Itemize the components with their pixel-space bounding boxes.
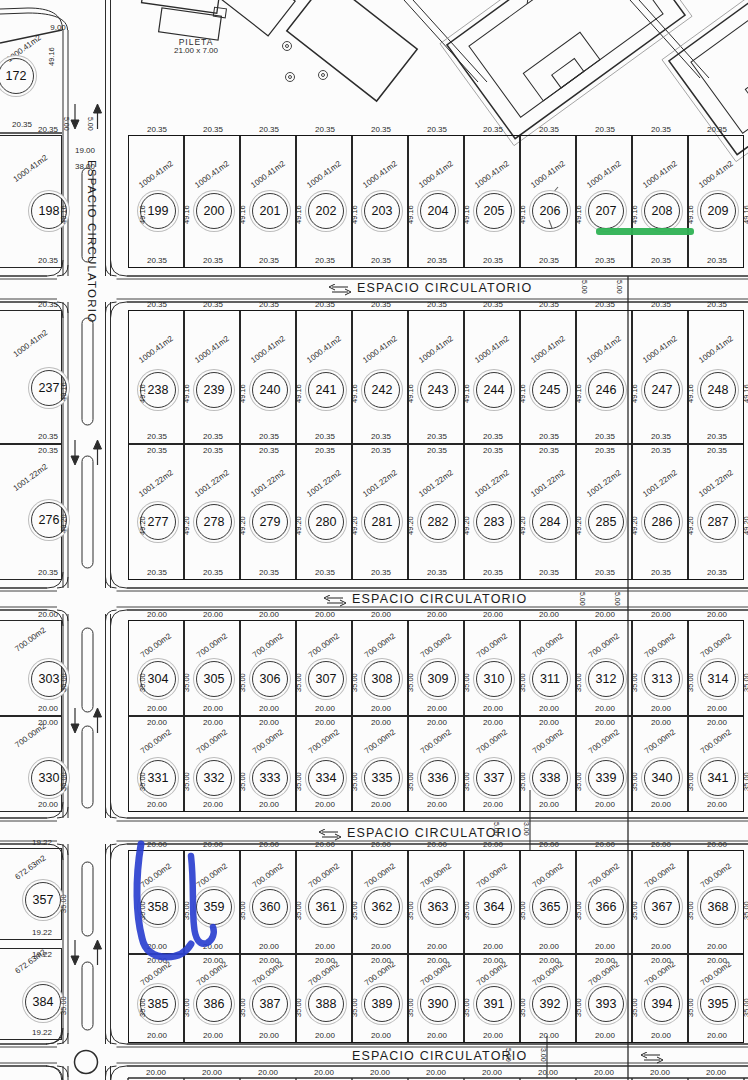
lot-width-dim: 20.00 bbox=[427, 704, 447, 713]
lot-number: 394 bbox=[644, 986, 680, 1022]
lot-number: 308 bbox=[364, 661, 400, 697]
lot-width-dim: 20.35 bbox=[483, 446, 503, 455]
lot-width-dim: 20.35 bbox=[259, 432, 279, 441]
lot-287: 1001.22m228749.2020.3520.35 bbox=[688, 444, 744, 580]
lot-245: 1000.41m224549.1620.3520.35 bbox=[520, 310, 576, 444]
lot-244: 1000.41m224449.1620.3520.35 bbox=[464, 310, 520, 444]
lot-area: 700.00m2 bbox=[300, 722, 349, 761]
lane-width-dim: 5.00 bbox=[505, 1048, 512, 1062]
lot-width-dim: 20.00 bbox=[651, 840, 671, 849]
lot-247: 1000.41m224749.1620.3520.35 bbox=[632, 310, 688, 444]
plan-line bbox=[106, 614, 111, 818]
two-way-arrow-icon bbox=[318, 829, 342, 841]
subdivision-plan: ESPACIO CIRCULATORIO ESPACIO CIRCULATORI… bbox=[0, 0, 748, 1080]
lot-number: 395 bbox=[700, 986, 736, 1022]
lot-238: 1000.41m223849.1649.1620.3520.35 bbox=[128, 310, 184, 444]
lot-width-dim: 20.00 bbox=[371, 704, 391, 713]
lot-number: 286 bbox=[644, 504, 680, 540]
lot-area: 1001.22m2 bbox=[3, 456, 58, 499]
lot-number: 287 bbox=[700, 504, 736, 540]
lot-248: 1000.41m224849.1620.3520.35 bbox=[688, 310, 744, 444]
lot-area: 1000.41m2 bbox=[300, 330, 349, 369]
lot-width-dim: 20.35 bbox=[707, 256, 727, 265]
lot-278: 1001.22m227849.2020.3520.35 bbox=[184, 444, 240, 580]
plan-line bbox=[404, 0, 487, 82]
lot-width-dim: 20.35 bbox=[483, 300, 503, 309]
lot-width-dim: 20.35 bbox=[483, 125, 503, 134]
road-label-band2: ESPACIO CIRCULATORIO bbox=[352, 592, 527, 606]
lot-number: 334 bbox=[308, 760, 344, 796]
lot-width-dim: 20.00 bbox=[371, 942, 391, 951]
lot-number: 241 bbox=[308, 372, 344, 408]
lot-199: 1000.41m219949.1649.1620.3520.35 bbox=[128, 135, 184, 268]
lot-width-dim: 20.35 bbox=[371, 446, 391, 455]
lot-width-dim: 20.35 bbox=[539, 125, 559, 134]
two-way-arrow-icon bbox=[323, 595, 347, 607]
lot-width-dim: 20.35 bbox=[38, 568, 58, 577]
lot-202: 1000.41m220249.1620.3520.35 bbox=[296, 135, 352, 268]
lot-307: 700.00m230735.0020.0020.00 bbox=[296, 620, 352, 716]
lot-width-dim: 19.22 bbox=[32, 928, 52, 937]
lot-area: 1000.41m2 bbox=[356, 155, 405, 194]
lot-width-dim: 20.35 bbox=[707, 125, 727, 134]
lane-width-dim: 5.00 bbox=[87, 117, 94, 131]
lot-area: 700.00m2 bbox=[580, 626, 629, 665]
lot-width-dim: 20.00 bbox=[147, 1031, 167, 1040]
lot-number: 360 bbox=[252, 889, 288, 925]
lot-width-dim: 20.35 bbox=[595, 446, 615, 455]
lot-width-dim: 20.35 bbox=[371, 300, 391, 309]
lot-area: 1000.41m2 bbox=[580, 155, 629, 194]
lot-303: 700.00m230335.0020.0020.00 bbox=[0, 620, 62, 716]
lot-width-dim: 20.00 bbox=[370, 1068, 390, 1077]
lot-number: 201 bbox=[252, 193, 288, 229]
lot-width-dim: 20.35 bbox=[259, 568, 279, 577]
lot-width-dim: 19.22 bbox=[32, 838, 52, 847]
lot-number: 387 bbox=[252, 986, 288, 1022]
lot-area: 700.00m2 bbox=[524, 722, 573, 761]
lot-width-dim: 20.00 bbox=[315, 704, 335, 713]
lot-width-dim: 20.35 bbox=[147, 300, 167, 309]
lot-368: 700.00m236835.0020.0020.00 bbox=[688, 850, 744, 954]
lot-width-dim: 20.00 bbox=[483, 800, 503, 809]
lot-width-dim: 20.00 bbox=[314, 1068, 334, 1077]
lot-number: 335 bbox=[364, 760, 400, 796]
lot-number: 310 bbox=[476, 661, 512, 697]
lot-243: 1000.41m224349.1620.3520.35 bbox=[408, 310, 464, 444]
lot-number: 309 bbox=[420, 661, 456, 697]
lot-width-dim: 20.00 bbox=[595, 718, 615, 727]
lane-width-dim: 5.00 bbox=[581, 280, 588, 294]
lot-width-dim: 20.00 bbox=[371, 840, 391, 849]
lot-width-dim: 20.35 bbox=[38, 125, 58, 134]
lot-area: 1000.41m2 bbox=[3, 147, 58, 190]
lot-area: 1000.41m2 bbox=[692, 155, 741, 194]
lot-area: 700.00m2 bbox=[188, 722, 237, 761]
lot-width-dim: 20.35 bbox=[203, 300, 223, 309]
lot-number: 386 bbox=[196, 986, 232, 1022]
lot-number: 384 bbox=[25, 984, 61, 1020]
lot-width-dim: 20.35 bbox=[315, 256, 335, 265]
lot-width-dim: 20.35 bbox=[315, 300, 335, 309]
lot-width-dim: 20.00 bbox=[707, 800, 727, 809]
lot-width-dim: 20.00 bbox=[147, 610, 167, 619]
lot-281: 1001.22m228149.2020.3520.35 bbox=[352, 444, 408, 580]
plan-line bbox=[94, 708, 102, 717]
plan-rect bbox=[691, 0, 748, 133]
plan-line bbox=[71, 456, 79, 465]
lot-width-dim: 20.35 bbox=[539, 568, 559, 577]
lot-width-dim: 20.35 bbox=[427, 568, 447, 577]
lot-depth-dim: 35.00 bbox=[742, 673, 748, 692]
lot-width-dim: 20.00 bbox=[427, 800, 447, 809]
lot-283: 1001.22m228349.2020.3520.35 bbox=[464, 444, 520, 580]
lot-number: 311 bbox=[532, 661, 568, 697]
lot-area: 1000.41m2 bbox=[468, 330, 517, 369]
lot-area: 1001.22m2 bbox=[692, 464, 741, 503]
lot-width-dim: 20.00 bbox=[651, 1031, 671, 1040]
lot-width-dim: 20.00 bbox=[427, 942, 447, 951]
lot-number: 314 bbox=[700, 661, 736, 697]
lot-number: 244 bbox=[476, 372, 512, 408]
lot-width-dim: 20.00 bbox=[651, 956, 671, 965]
plan-rect bbox=[142, 0, 220, 13]
lot-number: 392 bbox=[532, 986, 568, 1022]
lot-width-dim: 20.35 bbox=[147, 568, 167, 577]
lot-width-dim: 20.35 bbox=[315, 568, 335, 577]
lot-width-dim: 20.00 bbox=[259, 1031, 279, 1040]
lot-width-dim: 20.35 bbox=[203, 446, 223, 455]
lot-area: 700.00m2 bbox=[636, 722, 685, 761]
lot-area: 1000.41m2 bbox=[356, 330, 405, 369]
lot-depth-dim: 35.00 bbox=[59, 894, 68, 913]
lot-203: 1000.41m220349.1620.3520.35 bbox=[352, 135, 408, 268]
lot-area: 1001.22m2 bbox=[132, 464, 181, 503]
lot-width-dim: 20.00 bbox=[203, 718, 223, 727]
lot-width-dim: 20.35 bbox=[259, 446, 279, 455]
lot-area: 700.00m2 bbox=[188, 626, 237, 665]
lot-width-dim: 20.00 bbox=[482, 1068, 502, 1077]
lot-depth-dim: 35.00 bbox=[742, 998, 748, 1017]
lot-width-dim: 20.35 bbox=[539, 256, 559, 265]
lot-number: 248 bbox=[700, 372, 736, 408]
lot-width-dim: 20.35 bbox=[147, 125, 167, 134]
lot-239: 1000.41m223949.1620.3520.35 bbox=[184, 310, 240, 444]
lot-area: 1001.22m2 bbox=[356, 464, 405, 503]
lot-area: 700.00m2 bbox=[244, 722, 293, 761]
lot-width-dim: 20.00 bbox=[538, 1068, 558, 1077]
lot-area: 700.00m2 bbox=[692, 626, 741, 665]
plan-line bbox=[106, 302, 111, 588]
lot-width-dim: 19.22 bbox=[32, 950, 52, 959]
lot-number: 365 bbox=[532, 889, 568, 925]
lot-number: 340 bbox=[644, 760, 680, 796]
lot-number: 209 bbox=[700, 193, 736, 229]
lot-334: 700.00m233435.0020.0020.00 bbox=[296, 716, 352, 812]
lot-area: 700.00m2 bbox=[244, 626, 293, 665]
lot-width-dim: 20.35 bbox=[707, 446, 727, 455]
lane-width-dim: 5.00 bbox=[616, 280, 623, 294]
lot-308: 700.00m230835.0020.0020.00 bbox=[352, 620, 408, 716]
lot-area: 1001.22m2 bbox=[412, 464, 461, 503]
lot-number: 202 bbox=[308, 193, 344, 229]
lot-width-dim: 20.35 bbox=[203, 256, 223, 265]
lot-240: 1000.41m224049.1620.3520.35 bbox=[240, 310, 296, 444]
lot-number: 362 bbox=[364, 889, 400, 925]
lot-388: 700.00m238835.0020.0020.00 bbox=[296, 954, 352, 1043]
lot-width-dim: 20.35 bbox=[483, 256, 503, 265]
plan-line bbox=[630, 0, 709, 78]
lot-width-dim: 20.00 bbox=[595, 942, 615, 951]
lot-width-dim: 20.00 bbox=[427, 718, 447, 727]
lot-area: 700.00m2 bbox=[580, 722, 629, 761]
lot-number: 279 bbox=[252, 504, 288, 540]
lot-area: 1000.41m2 bbox=[524, 155, 573, 194]
lot-width-dim: 20.00 bbox=[483, 610, 503, 619]
lot-333: 700.00m233335.0020.0020.00 bbox=[240, 716, 296, 812]
lot-number: 278 bbox=[196, 504, 232, 540]
lot-width-dim: 20.35 bbox=[595, 256, 615, 265]
lot-width-dim: 20.00 bbox=[38, 610, 58, 619]
lot-area: 1000.41m2 bbox=[188, 155, 237, 194]
road-label-band4: ESPACIO CIRCULATORIO bbox=[352, 1049, 527, 1063]
lot-area: 700.00m2 bbox=[524, 626, 573, 665]
lot-width-dim: 20.35 bbox=[651, 300, 671, 309]
lot-330: 700.00m233035.0020.0020.00 bbox=[0, 716, 62, 812]
lot-depth-dim: 35.00 bbox=[59, 772, 68, 791]
lot-360: 700.00m236035.0020.0020.00 bbox=[240, 850, 296, 954]
lot-number: 357 bbox=[25, 882, 61, 918]
lot-number: 246 bbox=[588, 372, 624, 408]
lot-width-dim: 20.35 bbox=[315, 432, 335, 441]
lot-width-dim: 20.00 bbox=[651, 942, 671, 951]
soccer-field bbox=[440, 0, 692, 146]
lot-394: 700.00m239435.0020.0020.00 bbox=[632, 954, 688, 1043]
lot-number: 339 bbox=[588, 760, 624, 796]
lot-width-dim: 20.00 bbox=[315, 610, 335, 619]
lot-312: 700.00m231235.0020.0020.00 bbox=[576, 620, 632, 716]
lot-width-dim: 20.00 bbox=[651, 718, 671, 727]
lot-number: 363 bbox=[420, 889, 456, 925]
lot-area: 1000.41m2 bbox=[300, 155, 349, 194]
lot-241: 1000.41m224149.1620.3520.35 bbox=[296, 310, 352, 444]
lot-304: 700.00m230435.0035.0020.0020.00 bbox=[128, 620, 184, 716]
lot-384: 672.63m238435.0019.2219.22 bbox=[0, 948, 62, 1040]
lot-depth-dim: 35.00 bbox=[138, 772, 147, 791]
lot-313: 700.00m231335.0020.0020.00 bbox=[632, 620, 688, 716]
lane-width-dim: 3.00 bbox=[523, 822, 530, 836]
lot-337: 700.00m233735.0020.0020.00 bbox=[464, 716, 520, 812]
lot-area: 1000.41m2 bbox=[3, 322, 58, 365]
lot-number: 245 bbox=[532, 372, 568, 408]
lot-width-dim: 20.35 bbox=[371, 125, 391, 134]
lot-number: 337 bbox=[476, 760, 512, 796]
lot-width-dim: 20.00 bbox=[315, 956, 335, 965]
lot-357: 672.63m235735.0019.2219.22 bbox=[0, 848, 62, 940]
lot-width-dim: 20.00 bbox=[595, 840, 615, 849]
lot-208: 1000.41m220849.1620.3520.35 bbox=[632, 135, 688, 268]
lot-width-dim: 20.35 bbox=[651, 568, 671, 577]
lot-width-dim: 20.35 bbox=[595, 300, 615, 309]
lot-number: 206 bbox=[532, 193, 568, 229]
lot-width-dim: 20.00 bbox=[483, 718, 503, 727]
lot-width-dim: 20.00 bbox=[147, 718, 167, 727]
lot-387: 700.00m238735.0020.0020.00 bbox=[240, 954, 296, 1043]
plan-rect bbox=[82, 862, 93, 936]
lot-width-dim: 20.35 bbox=[147, 256, 167, 265]
lot-width-dim: 20.00 bbox=[651, 800, 671, 809]
lot-number: 200 bbox=[196, 193, 232, 229]
lot-width-dim: 20.00 bbox=[371, 956, 391, 965]
plan-line bbox=[94, 940, 102, 949]
lot-width-dim: 20.35 bbox=[707, 432, 727, 441]
lot-number: 336 bbox=[420, 760, 456, 796]
lot-depth-dim: 35.00 bbox=[138, 673, 147, 692]
lot-number: 240 bbox=[252, 372, 288, 408]
lot-width-dim: 20.00 bbox=[203, 800, 223, 809]
lot-width-dim: 20.35 bbox=[427, 256, 447, 265]
lot-width-dim: 20.00 bbox=[539, 1031, 559, 1040]
lot-width-dim: 20.00 bbox=[427, 840, 447, 849]
lot-width-dim: 20.35 bbox=[315, 446, 335, 455]
plan-rect bbox=[82, 628, 93, 712]
lot-width-dim: 20.00 bbox=[258, 1068, 278, 1077]
pool-dims: 21.00 x 7.00 bbox=[174, 46, 218, 55]
lot-width-dim: 20.00 bbox=[371, 1031, 391, 1040]
lot-width-dim: 20.35 bbox=[539, 446, 559, 455]
lot-width-dim: 20.00 bbox=[259, 942, 279, 951]
plan-rect bbox=[287, 0, 417, 101]
lot-area: 1000.41m2 bbox=[636, 155, 685, 194]
lot-width-dim: 20.35 bbox=[651, 125, 671, 134]
lot-width-dim: 20.35 bbox=[259, 300, 279, 309]
lot-number: 367 bbox=[644, 889, 680, 925]
lot-depth-dim: 49.16 bbox=[742, 205, 748, 224]
lot-depth-dim: 49.16 bbox=[742, 384, 748, 403]
lot-width-dim: 20.00 bbox=[650, 1068, 670, 1077]
lot-width-dim: 20.35 bbox=[371, 568, 391, 577]
lot-198: 1000.41m219849.1620.3520.35 bbox=[0, 135, 62, 268]
lot-number: 204 bbox=[420, 193, 456, 229]
lot-width-dim: 20.35 bbox=[651, 256, 671, 265]
lot-number: 389 bbox=[364, 986, 400, 1022]
lot-width-dim: 20.00 bbox=[147, 800, 167, 809]
lot-width-dim: 20.00 bbox=[707, 840, 727, 849]
lot-width-dim: 20.00 bbox=[651, 704, 671, 713]
lot-number: 285 bbox=[588, 504, 624, 540]
plan-rect bbox=[552, 59, 584, 88]
lot-279: 1001.22m227949.2020.3520.35 bbox=[240, 444, 296, 580]
plan-line bbox=[106, 0, 111, 276]
lot-number: 243 bbox=[420, 372, 456, 408]
lot-number: 393 bbox=[588, 986, 624, 1022]
lot-number: 312 bbox=[588, 661, 624, 697]
lot-area: 1000.41m2 bbox=[468, 155, 517, 194]
lot-width-dim: 20.00 bbox=[483, 956, 503, 965]
lot-286: 1001.22m228649.2020.3520.35 bbox=[632, 444, 688, 580]
lot-area: 1001.22m2 bbox=[300, 464, 349, 503]
lot-area: 1000.41m2 bbox=[132, 330, 181, 369]
center-arc bbox=[522, 0, 553, 4]
lot-width-dim: 20.35 bbox=[147, 446, 167, 455]
lot-number: 361 bbox=[308, 889, 344, 925]
lane-width-dim: 5.00 bbox=[614, 592, 621, 606]
lot-number: 284 bbox=[532, 504, 568, 540]
lot-number: 205 bbox=[476, 193, 512, 229]
lot-area: 1000.41m2 bbox=[188, 330, 237, 369]
lot-depth-dim: 49.16 bbox=[47, 47, 56, 66]
lot-width-dim: 20.35 bbox=[427, 125, 447, 134]
lot-311: 700.00m231135.0020.0020.00 bbox=[520, 620, 576, 716]
lot-area: 1001.22m2 bbox=[188, 464, 237, 503]
lot-number: 306 bbox=[252, 661, 288, 697]
lot-width-dim: 20.00 bbox=[427, 956, 447, 965]
lane-width-dim: 5.00 bbox=[579, 592, 586, 606]
lot-width-dim: 20.00 bbox=[595, 610, 615, 619]
lot-237: 1000.41m223749.1620.3520.35 bbox=[0, 310, 62, 444]
green-highlight-annotation bbox=[596, 228, 694, 235]
lot-width-dim: 20.00 bbox=[203, 1031, 223, 1040]
lot-width-dim: 20.35 bbox=[259, 125, 279, 134]
lot-area: 1001.22m2 bbox=[524, 464, 573, 503]
lot-332: 700.00m233235.0020.0020.00 bbox=[184, 716, 240, 812]
lot-number: 364 bbox=[476, 889, 512, 925]
plan-line bbox=[94, 440, 102, 449]
lot-width-dim: 20.00 bbox=[259, 610, 279, 619]
lot-depth-dim: 49.16 bbox=[59, 205, 68, 224]
lot-width-dim: 20.35 bbox=[595, 568, 615, 577]
lot-width-dim: 20.00 bbox=[483, 942, 503, 951]
lot-285: 1001.22m228549.2020.3520.35 bbox=[576, 444, 632, 580]
plan-rect bbox=[82, 318, 93, 425]
lot-area: 1000.41m2 bbox=[244, 155, 293, 194]
lot-area: 1000.41m2 bbox=[524, 330, 573, 369]
lot-area: 1000.41m2 bbox=[636, 330, 685, 369]
lot-width-dim: 20.00 bbox=[539, 840, 559, 849]
lot-width-dim: 20.00 bbox=[315, 718, 335, 727]
lot-width-dim: 20.00 bbox=[426, 1068, 446, 1077]
lot-depth-dim: 49.16 bbox=[59, 382, 68, 401]
lot-width-dim: 20.35 bbox=[259, 256, 279, 265]
lot-width-dim: 20.00 bbox=[259, 956, 279, 965]
plan-rect bbox=[82, 456, 93, 568]
lot-width-dim: 20.00 bbox=[38, 718, 58, 727]
lot-number: 239 bbox=[196, 372, 232, 408]
lot-width-dim: 20.35 bbox=[203, 432, 223, 441]
lot-number: 282 bbox=[420, 504, 456, 540]
lot-width-dim: 20.00 bbox=[203, 610, 223, 619]
lot-number: 208 bbox=[644, 193, 680, 229]
lane-width-dim: 5.00 bbox=[493, 822, 500, 836]
lot-339: 700.00m233935.0020.0020.00 bbox=[576, 716, 632, 812]
lot-width-dim: 20.35 bbox=[651, 446, 671, 455]
lot-area: 700.00m2 bbox=[3, 618, 58, 661]
lot-width-dim: 20.35 bbox=[147, 432, 167, 441]
lot-200: 1000.41m220049.1620.3520.35 bbox=[184, 135, 240, 268]
lot-width-dim: 20.00 bbox=[595, 704, 615, 713]
lot-area: 1000.41m2 bbox=[412, 330, 461, 369]
lot-width-dim: 20.35 bbox=[595, 125, 615, 134]
lot-width-dim: 20.35 bbox=[707, 300, 727, 309]
lot-305: 700.00m230535.0020.0020.00 bbox=[184, 620, 240, 716]
lot-width-dim: 20.35 bbox=[12, 120, 32, 129]
lot-width-dim: 20.00 bbox=[595, 800, 615, 809]
lot-width-dim: 20.35 bbox=[38, 300, 58, 309]
lot-number: 313 bbox=[644, 661, 680, 697]
lot-width-dim: 20.00 bbox=[202, 1068, 222, 1077]
lot-width-dim: 20.35 bbox=[595, 432, 615, 441]
lot-width-dim: 20.00 bbox=[707, 610, 727, 619]
